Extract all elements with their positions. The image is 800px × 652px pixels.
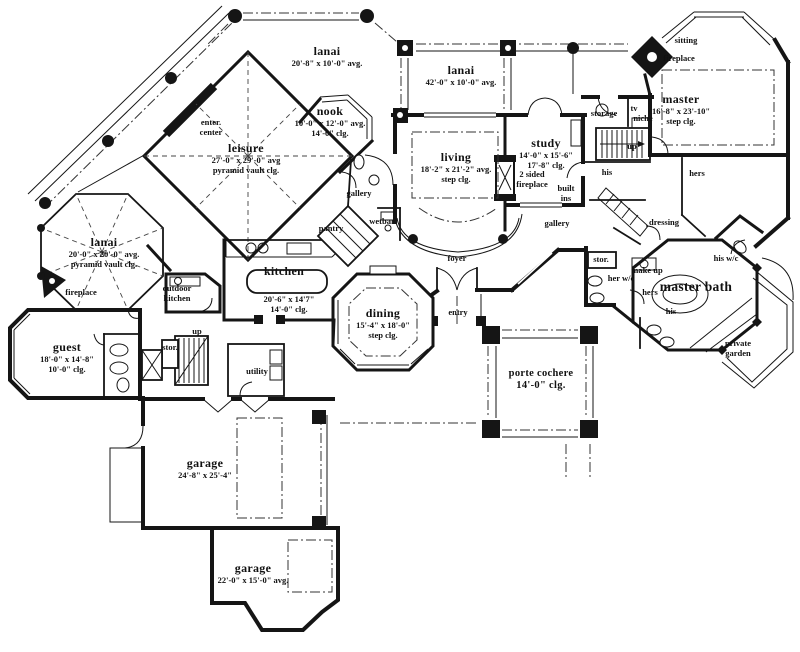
room-label-study: study 14'-0" x 15'-6" 17'-8" clg. bbox=[519, 136, 573, 170]
room-label-garage-second: garage 22'-0" x 15'-0" avg. bbox=[218, 561, 289, 585]
niche-label: niche bbox=[633, 114, 652, 124]
room-label-guest: guest 18'-0" x 14'-8" 10'-0" clg. bbox=[40, 340, 94, 374]
wetbar-label: wetbar bbox=[369, 217, 395, 227]
private-garden-label: private garden bbox=[725, 339, 751, 358]
gallery-east-label: gallery bbox=[544, 219, 569, 229]
room-label-nook: nook 10'-0" x 12'-0" avg. 14'-0" clg. bbox=[295, 104, 366, 138]
room-label-master: master 16'-8" x 23'-10" step clg. bbox=[652, 92, 710, 126]
pantry-label: pantry bbox=[319, 224, 344, 234]
floor-plan: .w4{stroke:#151515;stroke-width:4;fill:n… bbox=[0, 0, 800, 652]
utility-label: utility bbox=[246, 367, 268, 377]
up-main-label: up bbox=[192, 327, 201, 337]
storage-label: storage bbox=[591, 109, 617, 119]
room-label-lanai-n: lanai 42'-0" x 10'-0" avg. bbox=[426, 63, 497, 87]
dressing-label: dressing bbox=[649, 218, 679, 228]
hers-closet-label: hers bbox=[689, 169, 705, 179]
foyer-label: foyer bbox=[448, 254, 467, 264]
his-bath-label: his bbox=[666, 307, 676, 317]
two-sided-fireplace-label: 2 sided fireplace bbox=[516, 170, 547, 189]
room-label-lanai-w: lanai 20'-0" x 20'-0" avg. pyramid vault… bbox=[69, 235, 140, 269]
sitting-label: sitting bbox=[675, 36, 698, 46]
room-label-kitchen: kitchen bbox=[264, 264, 304, 278]
his-closet-label: his bbox=[602, 168, 612, 178]
room-label-garage-main: garage 24'-8" x 25'-4" bbox=[178, 456, 232, 480]
gallery-west-label: gallery bbox=[346, 189, 371, 199]
room-label-master-bath: master bath bbox=[660, 279, 732, 295]
room-label-kitchen-dims: 20'-6" x 14'7" 14'-0" clg. bbox=[264, 294, 315, 314]
master-fireplace-label: fireplace bbox=[663, 54, 694, 64]
up-rear-label: up bbox=[627, 142, 636, 152]
master-suite bbox=[631, 12, 788, 155]
room-label-porte-cochere: porte cochere 14'-0" clg. bbox=[509, 368, 574, 393]
built-ins-label: built ins bbox=[557, 184, 574, 203]
stor-master-label: stor. bbox=[593, 255, 609, 265]
garage-wing bbox=[110, 398, 338, 630]
room-label-living: living 18'-2" x 21'-2" avg. step clg. bbox=[421, 150, 492, 184]
room-label-lanai-nw: lanai 20'-8" x 10'-0" avg. bbox=[292, 44, 363, 68]
hers-bath-label: hers bbox=[642, 288, 658, 298]
her-wc-label: her w/c bbox=[608, 274, 635, 284]
room-label-dining: dining 15'-4" x 18'-0" step clg. bbox=[356, 306, 410, 340]
lanai-fireplace-label: fireplace bbox=[65, 288, 96, 298]
entertainment-center-label: enter. center bbox=[200, 118, 223, 137]
rear-stairs-storage bbox=[583, 97, 652, 162]
his-wc-label: his w/c bbox=[714, 254, 739, 264]
outdoor-kitchen-label: outdoor kitchen bbox=[163, 284, 192, 303]
make-up-label: make up bbox=[631, 266, 662, 276]
entry-label: entry bbox=[448, 308, 467, 318]
stor-main-label: stor. bbox=[162, 343, 178, 353]
room-label-leisure: leisure 27'-0" x 29'-0" avg pyramid vaul… bbox=[212, 141, 281, 175]
